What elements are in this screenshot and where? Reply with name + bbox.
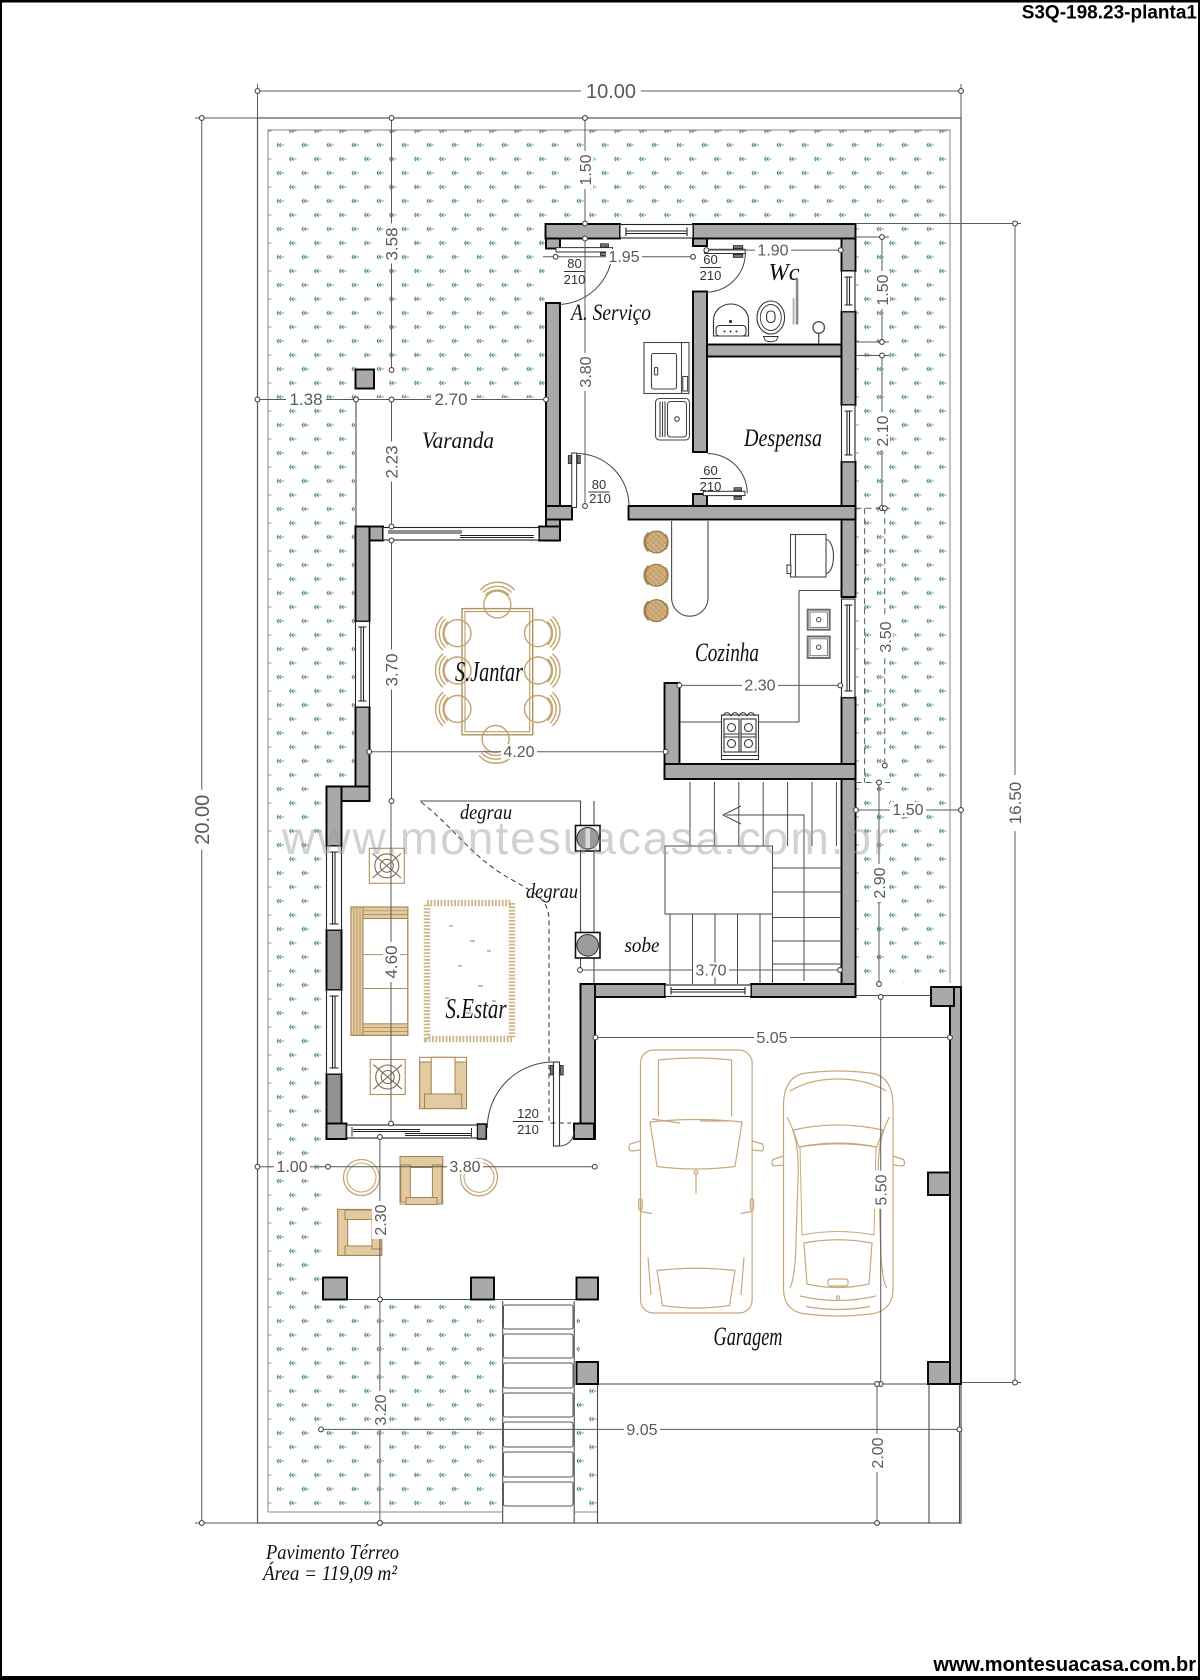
svg-text:3.58: 3.58 — [383, 227, 402, 260]
svg-text:Wc: Wc — [769, 260, 800, 286]
svg-text:4.20: 4.20 — [503, 744, 534, 761]
svg-text:10.00: 10.00 — [586, 81, 636, 103]
svg-text:Área = 119,09 m²: Área = 119,09 m² — [261, 1561, 397, 1585]
svg-text:210: 210 — [564, 272, 586, 287]
svg-text:2.23: 2.23 — [383, 445, 402, 478]
svg-text:80: 80 — [592, 477, 606, 492]
svg-text:20.00: 20.00 — [192, 795, 214, 845]
svg-text:2.10: 2.10 — [875, 415, 892, 446]
svg-text:2.00: 2.00 — [870, 1437, 887, 1468]
svg-text:4.60: 4.60 — [382, 945, 401, 978]
svg-text:80: 80 — [567, 256, 581, 271]
svg-text:60: 60 — [703, 252, 717, 267]
svg-text:210: 210 — [517, 1122, 539, 1137]
svg-text:Varanda: Varanda — [422, 428, 494, 453]
svg-text:3.70: 3.70 — [695, 963, 726, 980]
svg-text:www.montesuacasa.com.br: www.montesuacasa.com.br — [932, 1654, 1196, 1676]
svg-text:Cozinha: Cozinha — [695, 638, 759, 667]
svg-text:210: 210 — [700, 268, 722, 283]
svg-text:5.50: 5.50 — [874, 1174, 891, 1205]
svg-text:16.50: 16.50 — [1006, 782, 1025, 825]
svg-text:120: 120 — [517, 1106, 539, 1121]
svg-text:S3Q-198.23-planta1: S3Q-198.23-planta1 — [1022, 3, 1198, 24]
svg-text:210: 210 — [700, 479, 722, 494]
svg-text:3.50: 3.50 — [878, 621, 895, 652]
svg-text:3.80: 3.80 — [578, 356, 595, 387]
svg-text:1.90: 1.90 — [757, 243, 788, 260]
svg-text:1.00: 1.00 — [276, 1159, 307, 1176]
svg-text:210: 210 — [589, 491, 611, 506]
svg-text:2.90: 2.90 — [872, 867, 889, 898]
svg-text:S.Jantar: S.Jantar — [455, 657, 523, 688]
svg-text:1.50: 1.50 — [892, 802, 923, 819]
svg-text:3.70: 3.70 — [383, 653, 402, 686]
svg-text:1.50: 1.50 — [875, 274, 892, 305]
svg-text:2.30: 2.30 — [744, 678, 775, 695]
svg-text:1.38: 1.38 — [289, 390, 322, 409]
svg-text:5.05: 5.05 — [756, 1030, 787, 1047]
svg-text:60: 60 — [703, 463, 717, 478]
svg-text:2.30: 2.30 — [373, 1204, 390, 1235]
svg-text:9.05: 9.05 — [626, 1422, 657, 1439]
svg-text:3.20: 3.20 — [373, 1394, 390, 1425]
svg-text:www.montesuacasa.com.br: www.montesuacasa.com.br — [281, 812, 890, 864]
svg-text:sobe: sobe — [625, 933, 660, 957]
svg-text:degrau: degrau — [526, 879, 578, 903]
svg-text:S.Estar: S.Estar — [446, 994, 507, 1025]
svg-text:2.70: 2.70 — [434, 390, 467, 409]
svg-text:Despensa: Despensa — [743, 425, 822, 452]
svg-text:Garagem: Garagem — [714, 1322, 783, 1351]
svg-text:1.50: 1.50 — [578, 154, 595, 185]
svg-text:3.80: 3.80 — [449, 1159, 480, 1176]
svg-text:A. Serviço: A. Serviço — [569, 300, 651, 325]
svg-text:1.95: 1.95 — [608, 249, 639, 266]
